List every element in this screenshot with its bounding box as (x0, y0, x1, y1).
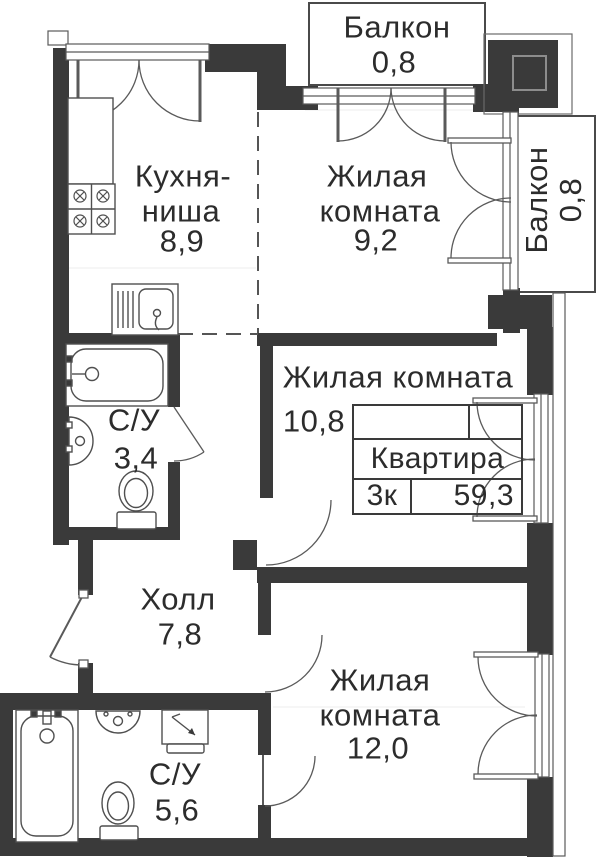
card-row-values: 3к 59,3 (354, 478, 521, 513)
room12-area: 12,0 (347, 733, 409, 764)
toilet-icon (117, 471, 156, 529)
kitchen-label-line1: Кухня- (135, 161, 231, 192)
bathtub-icon (66, 344, 168, 406)
bathroom-small-area: 3,4 (114, 443, 159, 474)
kitchen-area: 8,9 (160, 226, 205, 257)
room12-label-line2: комната (320, 700, 441, 731)
apartment-info-card: Квартира 3к 59,3 (352, 404, 523, 515)
stove-icon (68, 184, 115, 234)
bathtub-large-icon (16, 710, 78, 842)
floor-plan: Балкон 0,8 Кухня- ниша 8,9 Жилая комната… (0, 0, 600, 858)
bathroom-small-label: С/У (108, 405, 160, 436)
card-row-empty (354, 406, 521, 438)
balcony-top-area: 0,8 (372, 47, 417, 78)
kitchen-sink-icon (112, 284, 178, 335)
kitchen-label-line2: ниша (142, 196, 221, 227)
toilet-large-icon (100, 782, 138, 840)
washing-machine-icon (162, 710, 208, 753)
room9-area: 9,2 (354, 225, 399, 256)
balcony-right-label: Балкон 0,8 (520, 147, 588, 254)
balcony-right-name: Балкон (520, 147, 554, 254)
bathroom-large-label: С/У (149, 759, 201, 790)
bathroom-large-area: 5,6 (155, 795, 200, 826)
washbasin-large-icon (96, 711, 140, 733)
hall-area: 7,8 (158, 619, 203, 650)
card-title: Квартира (354, 438, 521, 478)
room10-area: 10,8 (283, 406, 345, 437)
room9-label-line1: Жилая (327, 161, 428, 192)
room12-label-line1: Жилая (330, 665, 431, 696)
balcony-top-label: Балкон (344, 12, 451, 43)
kitchen-counter (68, 98, 113, 184)
balcony-right-area: 0,8 (554, 147, 588, 254)
room10-label: Жилая комната (283, 362, 513, 393)
hall-label: Холл (140, 584, 215, 615)
card-divider (468, 406, 470, 438)
card-rooms-count: 3к (354, 480, 410, 512)
washbasin-icon (66, 417, 93, 465)
card-total-area: 59,3 (412, 480, 521, 512)
